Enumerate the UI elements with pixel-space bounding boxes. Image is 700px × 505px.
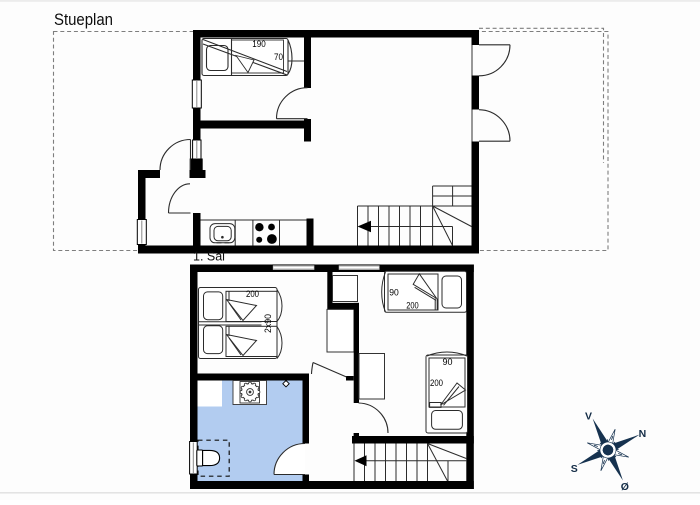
svg-text:N: N — [639, 428, 647, 440]
svg-text:1. Sal: 1. Sal — [193, 250, 225, 264]
svg-text:Ø: Ø — [621, 481, 629, 493]
svg-text:2x90: 2x90 — [263, 314, 273, 333]
svg-text:200: 200 — [430, 378, 443, 388]
svg-text:70: 70 — [274, 52, 283, 62]
svg-text:90: 90 — [443, 357, 453, 367]
svg-text:Stueplan: Stueplan — [54, 10, 113, 29]
svg-text:90: 90 — [389, 288, 399, 298]
svg-text:200: 200 — [406, 301, 419, 311]
svg-text:S: S — [571, 463, 578, 475]
svg-text:190: 190 — [252, 39, 265, 49]
svg-text:200: 200 — [246, 289, 259, 299]
svg-text:V: V — [585, 411, 592, 423]
